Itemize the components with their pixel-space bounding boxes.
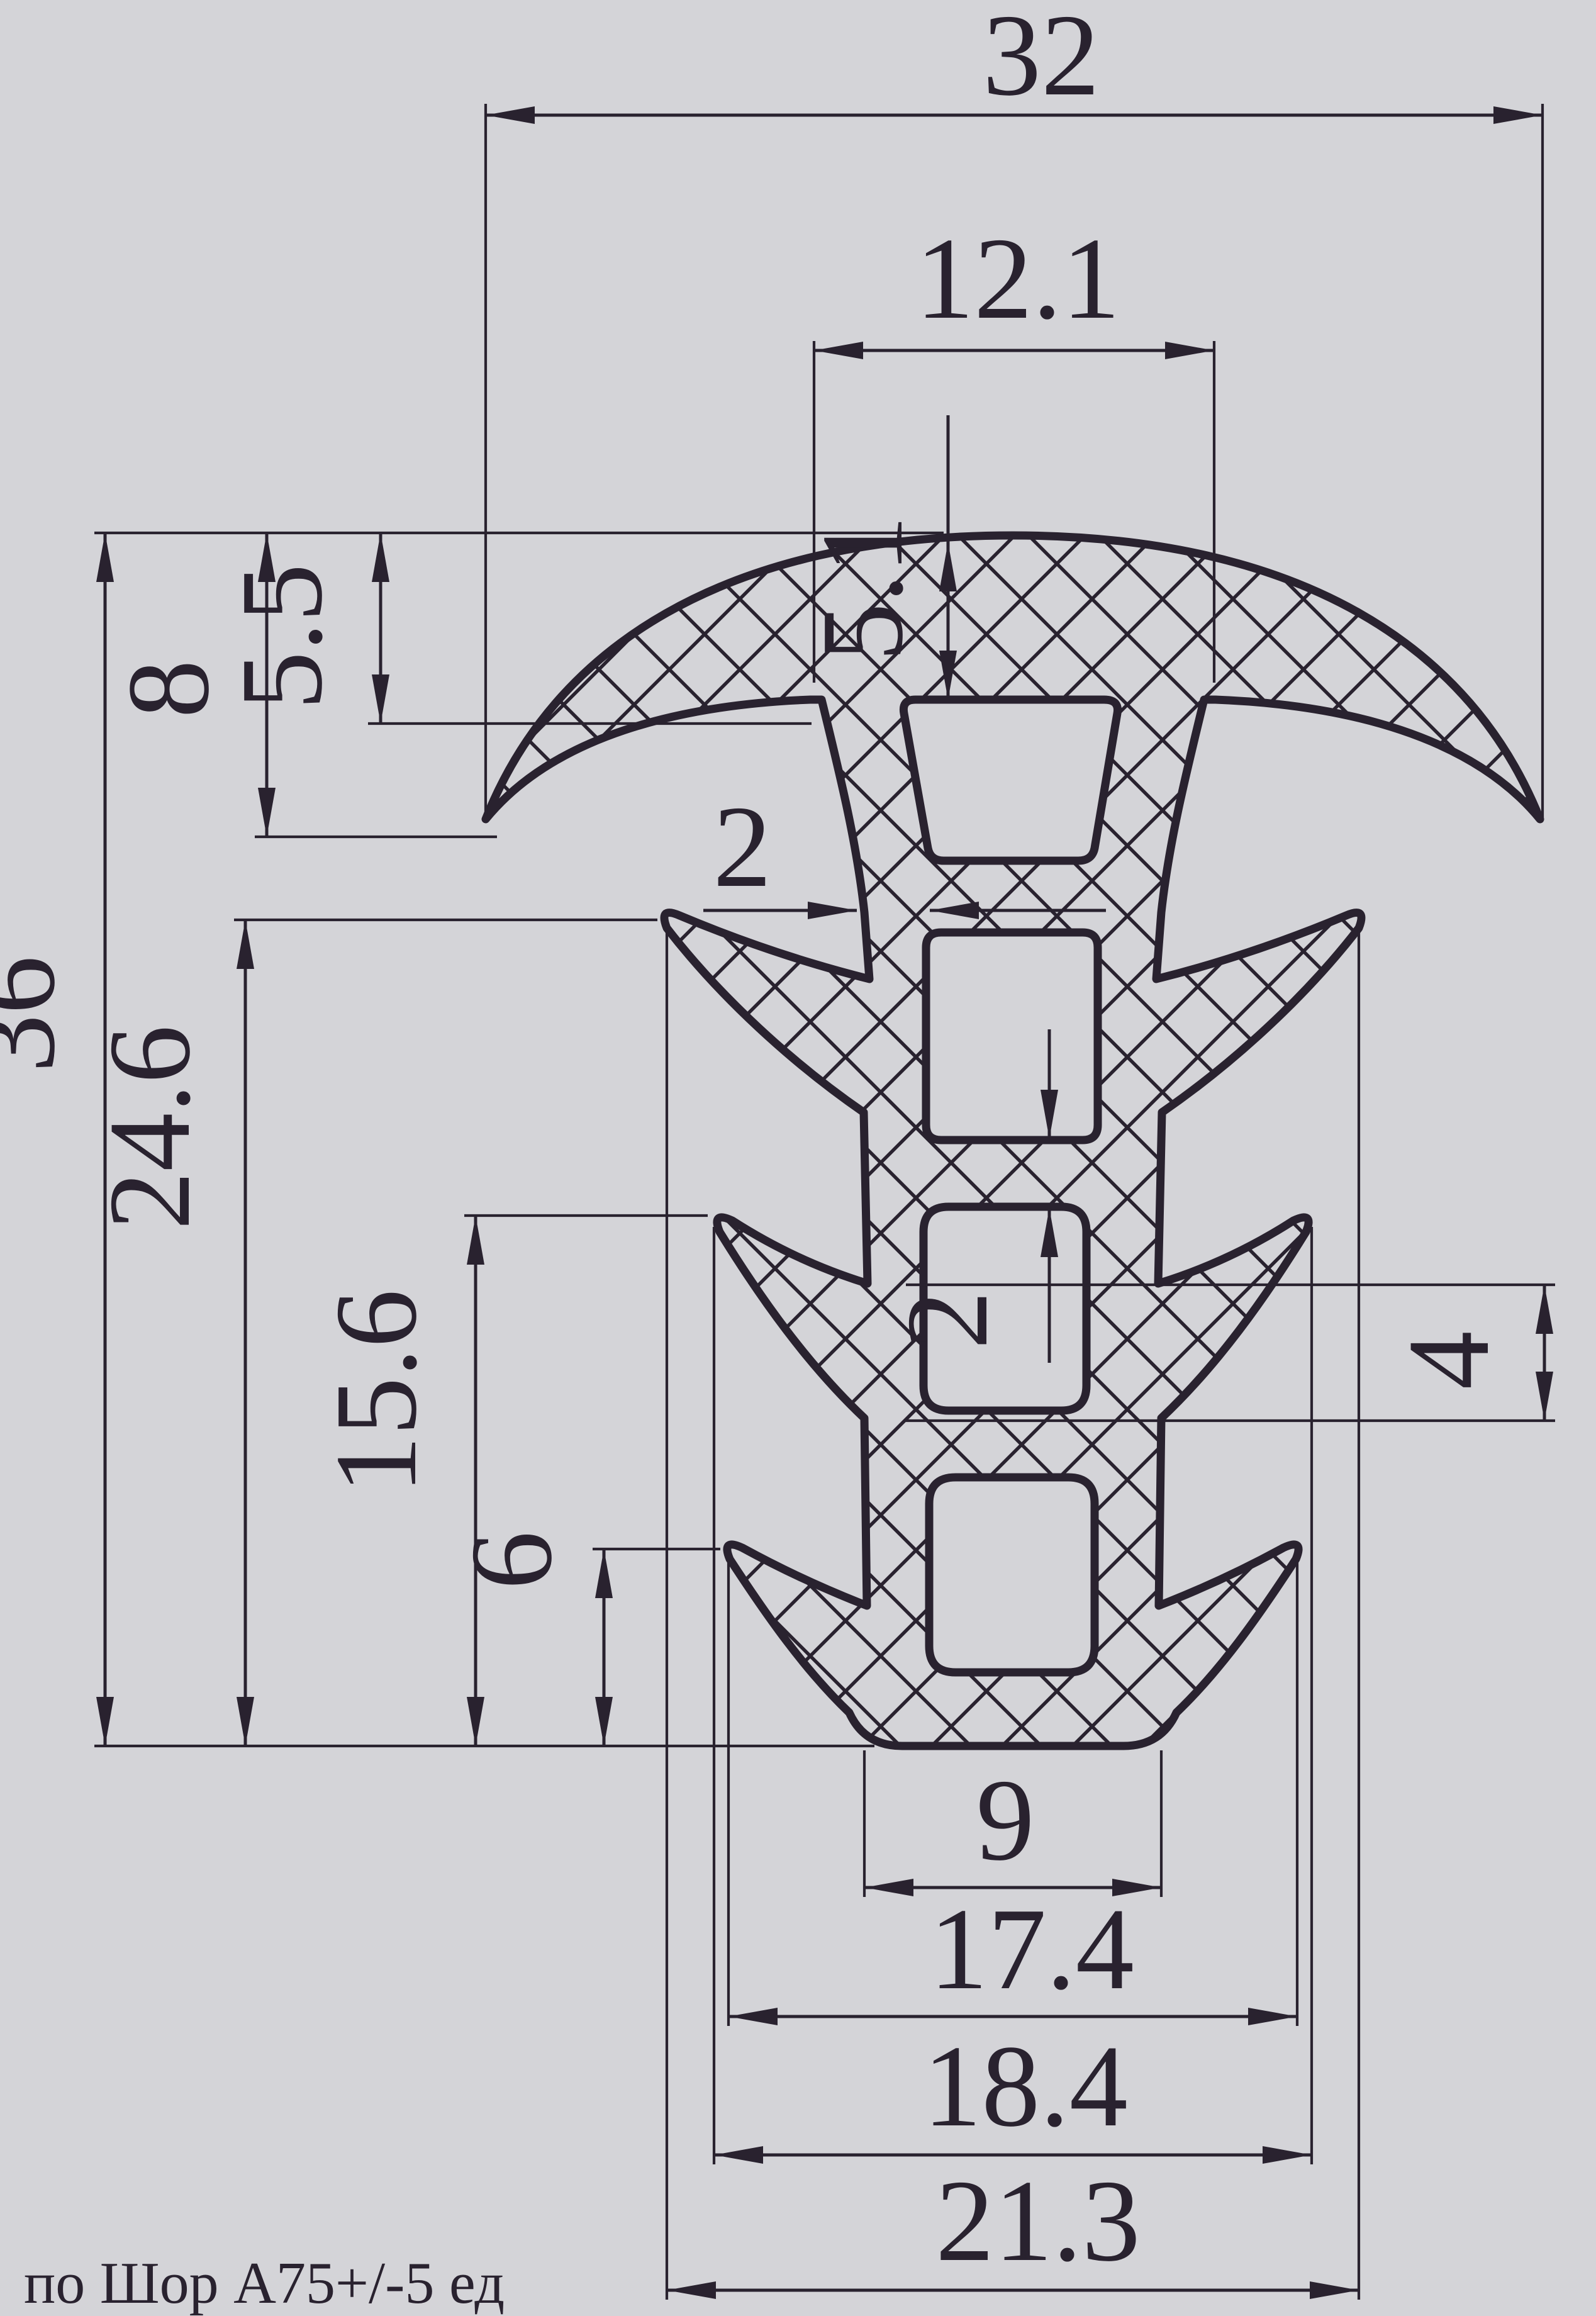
arrow-6-up <box>595 1549 613 1598</box>
arrow-156-down <box>467 1697 484 1746</box>
arrow-36-down <box>96 1697 114 1746</box>
label-crown-hole-depth: 5.1 <box>798 515 927 662</box>
label-barb1-to-base: 24.6 <box>85 1025 215 1230</box>
label-crown-height: 8 <box>104 660 233 719</box>
arrow-9-left <box>864 1879 913 1896</box>
arrow-184-left <box>714 2146 763 2164</box>
label-barb2-span: 18.4 <box>923 2022 1128 2151</box>
label-crown-junction-width: 12.1 <box>915 214 1120 344</box>
arrow-2web-up <box>1041 1208 1058 1257</box>
arrow-8-down <box>258 788 276 837</box>
arrow-32-left <box>486 106 535 124</box>
extension-lines <box>94 104 1555 2300</box>
seal-profile-technical-drawing: 32 12.1 5.1 5.5 8 2 36 24.6 15.6 6 2 4 9… <box>0 0 1596 2316</box>
arrow-156-up <box>467 1216 484 1265</box>
label-barb1-span: 21.3 <box>935 2156 1141 2286</box>
label-barb3-to-base: 6 <box>447 1531 576 1590</box>
label-overall-width: 32 <box>983 0 1100 120</box>
arrow-246-down <box>237 1697 254 1746</box>
label-barb-notch-height: 4 <box>1384 1331 1514 1390</box>
label-barb2-to-base: 15.6 <box>311 1289 441 1494</box>
arrow-174-left <box>728 2008 778 2025</box>
arrow-4-up <box>1536 1285 1553 1334</box>
label-base-width: 9 <box>976 1755 1035 1885</box>
label-web-between-holes: 2 <box>883 1291 1012 1350</box>
label-barb3-span: 17.4 <box>929 1884 1134 2014</box>
profile-outline <box>486 535 1540 1746</box>
label-overall-height: 36 <box>0 956 79 1073</box>
drawing-sheet: 32 12.1 5.1 5.5 8 2 36 24.6 15.6 6 2 4 9… <box>0 0 1596 2316</box>
dimension-labels: 32 12.1 5.1 5.5 8 2 36 24.6 15.6 6 2 4 9… <box>0 0 1514 2286</box>
arrow-184-right <box>1263 2146 1312 2164</box>
profile-section <box>486 535 1540 1746</box>
dimension-lines <box>105 115 1544 2290</box>
arrowheads <box>96 106 1553 2299</box>
label-stem-wall-thickness: 2 <box>713 782 772 912</box>
arrow-4-down <box>1536 1372 1553 1421</box>
arrow-2wall-right <box>808 902 857 919</box>
arrow-246-up <box>237 920 254 969</box>
arrow-36-up <box>96 533 114 582</box>
arrow-213-left <box>667 2281 716 2299</box>
label-crown-center-thickness: 5.5 <box>217 564 347 710</box>
arrow-121-left <box>814 342 863 359</box>
arrow-121-right <box>1165 342 1214 359</box>
arrow-2web-down <box>1041 1090 1058 1139</box>
arrow-55-up <box>372 533 389 582</box>
arrow-174-right <box>1248 2008 1297 2025</box>
arrow-6-down <box>595 1697 613 1746</box>
arrow-213-right <box>1310 2281 1359 2299</box>
hardness-note: по Шор А75+/-5 ед <box>24 2251 505 2316</box>
arrow-55-down <box>372 674 389 724</box>
arrow-32-right <box>1493 106 1543 124</box>
